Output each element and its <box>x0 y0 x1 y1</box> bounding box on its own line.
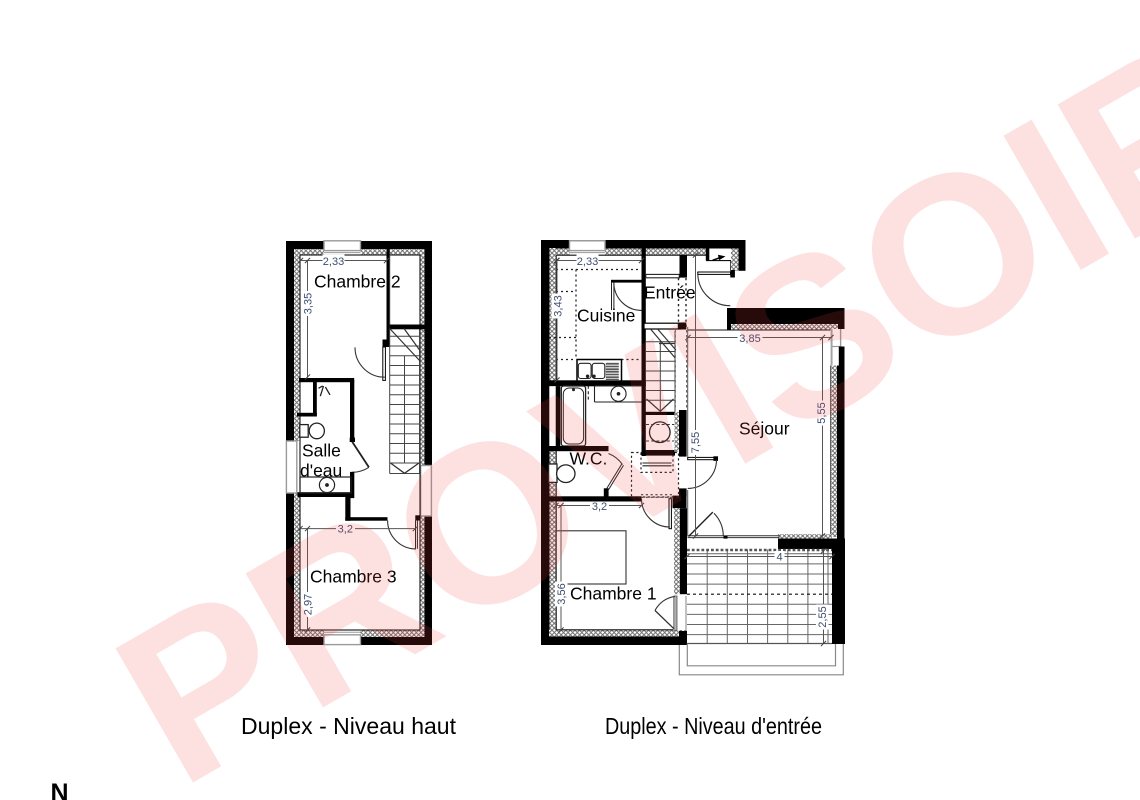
svg-text:Chambre 2: Chambre 2 <box>314 272 401 292</box>
svg-text:N: N <box>51 779 69 800</box>
svg-text:2,33: 2,33 <box>577 256 598 268</box>
svg-text:Salle: Salle <box>302 441 341 461</box>
svg-text:2,55: 2,55 <box>817 606 829 627</box>
svg-text:3,43: 3,43 <box>553 295 565 316</box>
svg-text:2,33: 2,33 <box>323 256 344 268</box>
svg-text:3,35: 3,35 <box>302 293 314 314</box>
svg-text:Duplex - Niveau d'entrée: Duplex - Niveau d'entrée <box>605 713 822 739</box>
svg-text:4: 4 <box>776 552 782 564</box>
svg-text:Duplex - Niveau haut: Duplex - Niveau haut <box>241 713 457 739</box>
